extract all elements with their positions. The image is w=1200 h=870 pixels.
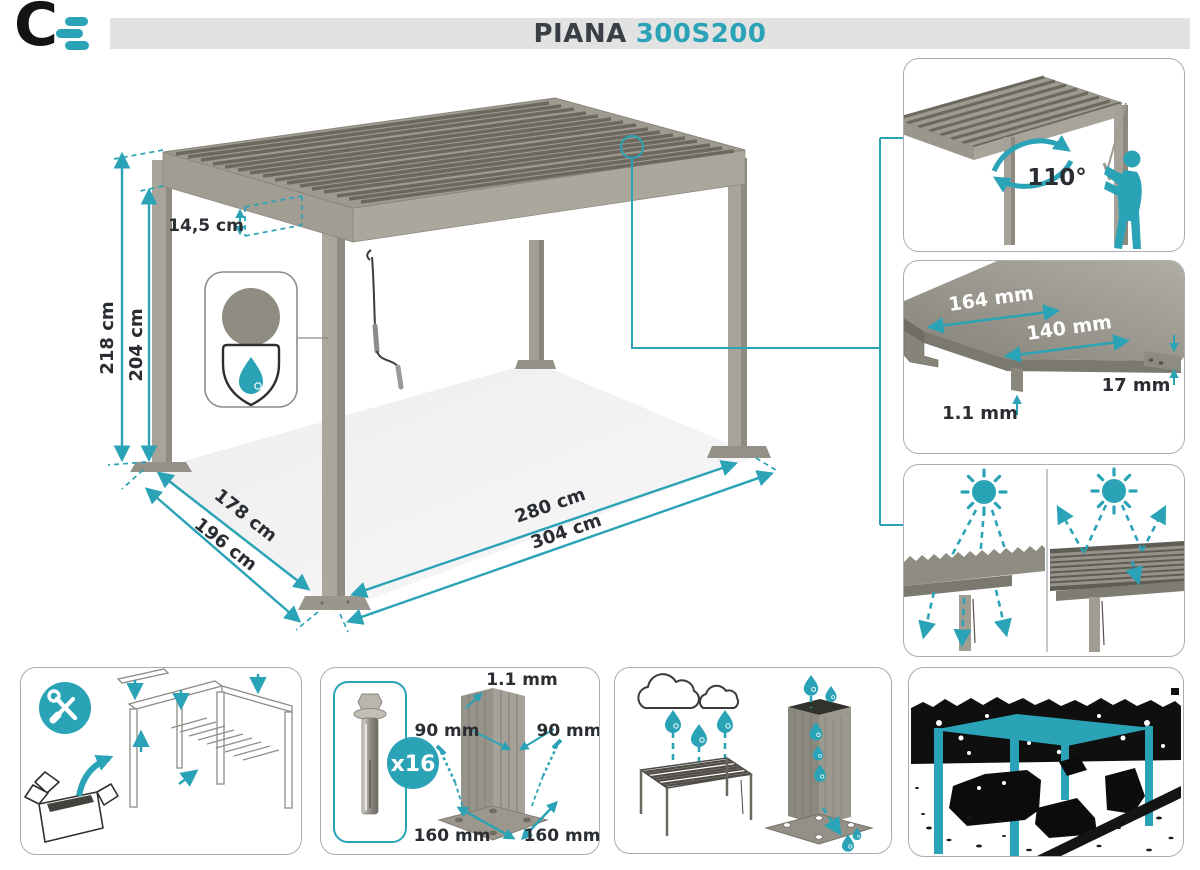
badge-dot — [222, 288, 280, 346]
post-cross-section — [439, 688, 547, 840]
page: C PIANA 300S200 — [0, 0, 1200, 870]
bolt-count-badge: x16 — [387, 737, 439, 789]
packaging-box-icon — [25, 772, 118, 842]
dimension-height-clearance: 204 cm — [126, 192, 149, 458]
panel-drainage — [614, 667, 892, 854]
dim-label: 1.1 mm — [942, 403, 1018, 424]
dimension-height-total: 218 cm — [97, 156, 122, 458]
exploded-frame-sketch — [118, 669, 292, 808]
mini-pergola — [904, 77, 1128, 245]
closed-roof-table-sketch — [641, 758, 751, 836]
bolt-count: x16 — [391, 752, 436, 777]
dim-label: 160 mm — [414, 826, 491, 846]
dim-label: 204 cm — [126, 308, 147, 381]
dimension-thickness: 1.1 mm — [942, 397, 1018, 424]
dim-label: 1.1 mm — [486, 670, 557, 690]
panel-louvre-rotation: 110° — [903, 58, 1185, 252]
open-louvres-diagram — [1050, 469, 1184, 652]
rotation-angle: 110° — [1027, 165, 1087, 191]
dimension-roof-thickness: 14,5 cm — [168, 211, 244, 236]
tools-badge — [39, 682, 91, 734]
dim-label: 14,5 cm — [168, 216, 244, 236]
pergola-roof — [163, 98, 745, 242]
dim-label: 90 mm — [536, 721, 599, 741]
panel-photo-stylized — [908, 667, 1184, 857]
dim-label: 160 mm — [524, 826, 599, 846]
panel-sun-shading — [903, 464, 1185, 657]
dim-label: 90 mm — [414, 721, 479, 741]
cloud-icon — [638, 674, 738, 708]
panel-assembly — [20, 667, 302, 855]
closed-louvres-diagram — [904, 470, 1045, 651]
dim-label: 218 cm — [97, 301, 118, 374]
panel-louvre-profile: 164 mm 140 mm 17 mm 1.1 mm — [903, 260, 1185, 454]
panel-anchoring: x16 1.1 mm — [320, 667, 600, 855]
water-resistance-badge — [205, 272, 297, 407]
draining-post — [766, 675, 872, 852]
dim-label: 17 mm — [1102, 375, 1171, 396]
crank-handle — [367, 250, 401, 387]
